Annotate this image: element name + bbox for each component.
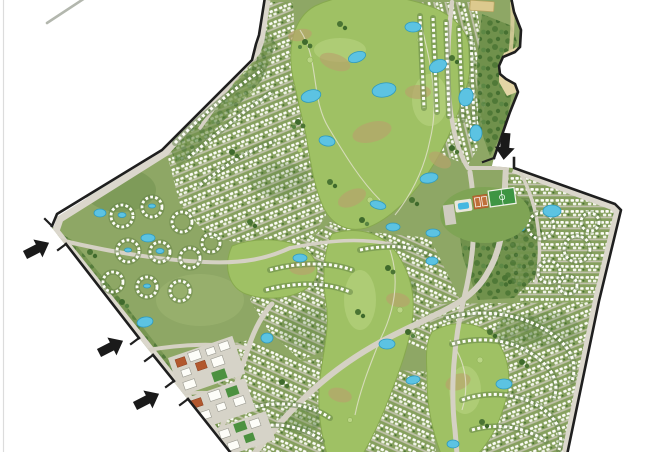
lake xyxy=(426,229,440,237)
lake xyxy=(141,234,155,242)
lake xyxy=(426,257,438,265)
lake xyxy=(543,205,561,217)
cluster-pond xyxy=(144,284,151,288)
lake xyxy=(261,333,273,343)
masterplan-canvas xyxy=(0,0,668,452)
sports-complex xyxy=(440,187,530,243)
lake xyxy=(405,22,421,32)
cluster-pond xyxy=(156,249,164,254)
lake xyxy=(386,223,400,231)
cluster-pond xyxy=(118,213,126,218)
cluster-pond xyxy=(125,248,132,252)
lake xyxy=(470,125,482,141)
clubhouse-building xyxy=(470,0,495,12)
lake xyxy=(293,254,307,262)
masterplan-map xyxy=(0,0,668,452)
cluster-pond xyxy=(149,204,156,208)
lake xyxy=(379,339,395,349)
lake xyxy=(496,379,512,389)
lake xyxy=(94,209,106,217)
lake xyxy=(447,440,459,448)
